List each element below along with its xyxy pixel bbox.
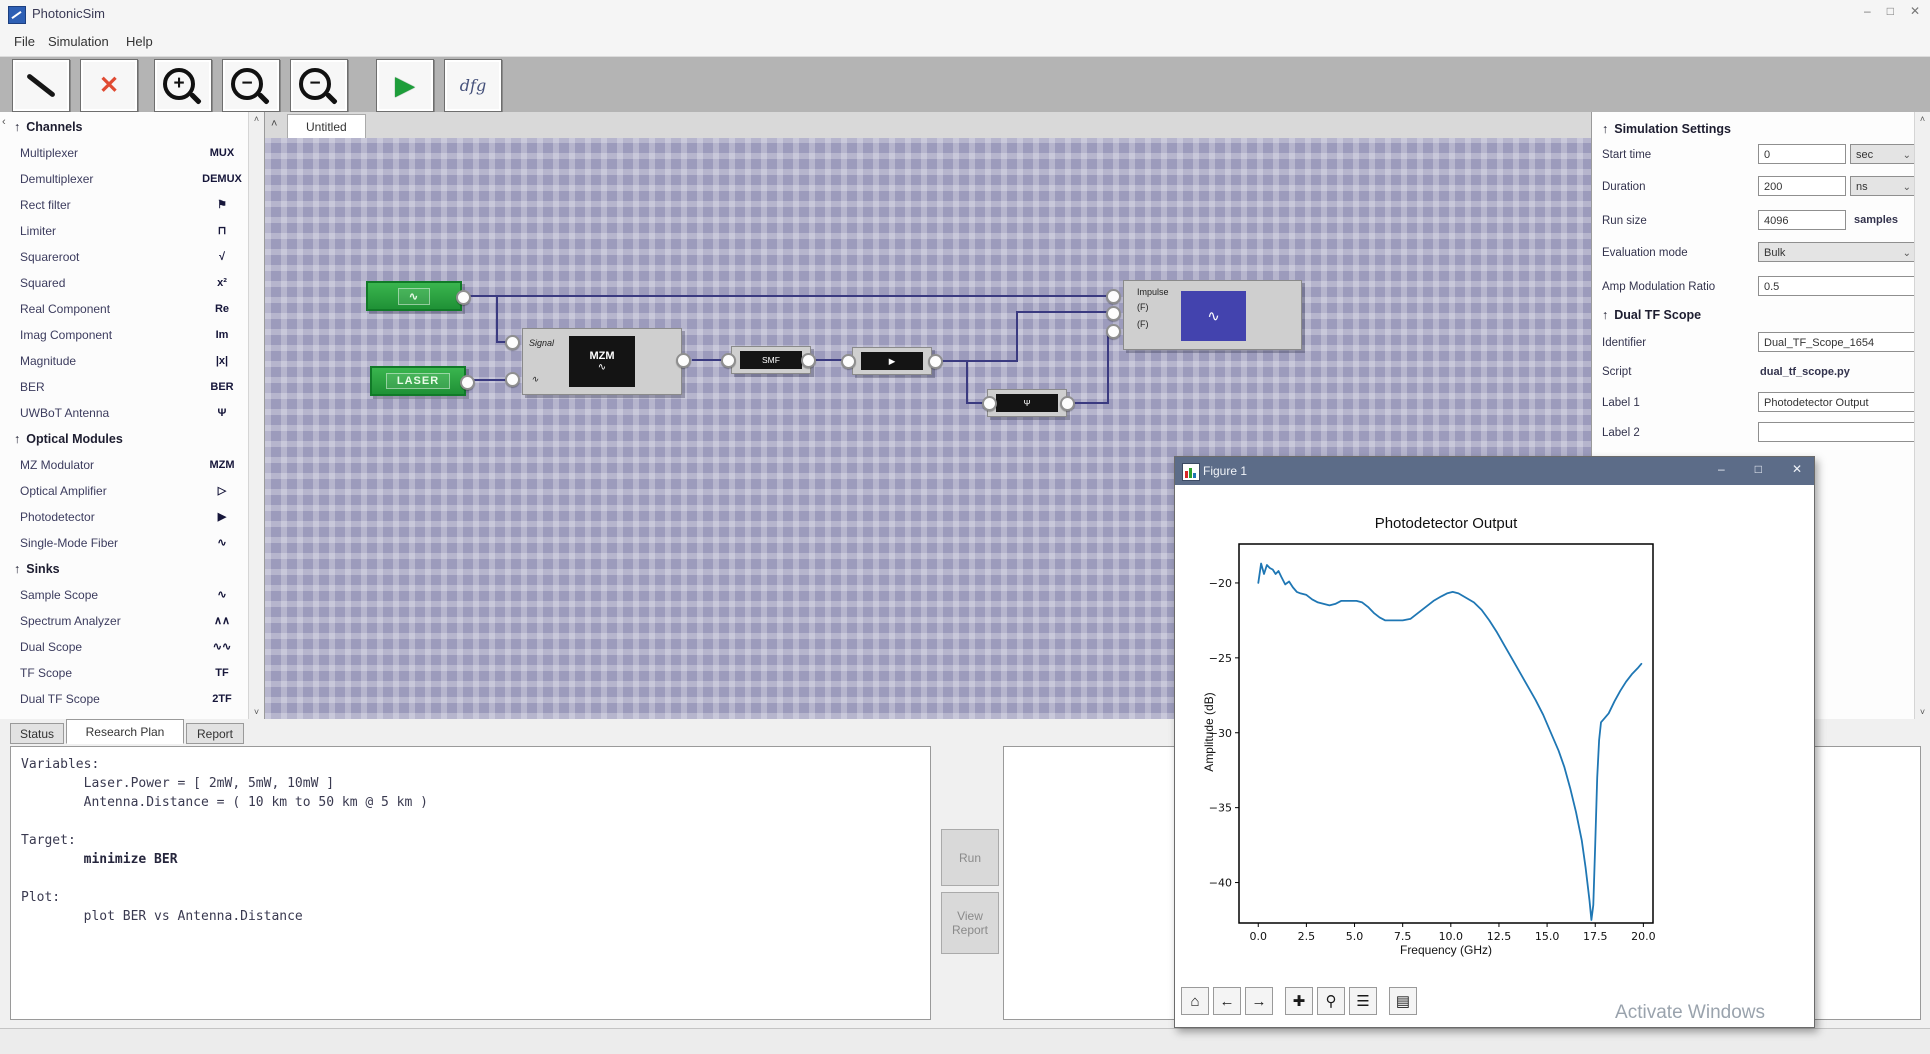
scope-port2-label: (F) — [1137, 302, 1149, 312]
y-axis-label: Amplitude (dB) — [1202, 662, 1216, 802]
palette-item-ber[interactable]: BERBER — [14, 374, 246, 400]
collapse-arrow-icon: ↑ — [14, 562, 20, 576]
component-palette: ‹ ↑ChannelsMultiplexerMUXDemultiplexerDE… — [0, 112, 265, 719]
scope-f1-port[interactable] — [1106, 306, 1121, 321]
canvas-tab-bar: ˄ Untitled — [265, 112, 1591, 139]
svg-text:15.0: 15.0 — [1535, 930, 1560, 943]
identifier-input[interactable]: Dual_TF_Scope_1654 — [1758, 332, 1916, 352]
palette-item-imag-component-icon: Im — [198, 322, 246, 348]
scope-port1-label: Impulse — [1137, 287, 1169, 297]
mzm-laser-port-label: ∿ — [531, 374, 539, 385]
wire-tool-button[interactable] — [12, 59, 70, 112]
palette-item-label: Squared — [14, 270, 65, 296]
view-report-button[interactable]: View Report — [941, 892, 999, 954]
palette-item-label: Single-Mode Fiber — [14, 530, 118, 556]
figure-window[interactable]: Figure 1 – □ ✕ 0.02.55.07.510.012.515.01… — [1174, 456, 1815, 1028]
photodetector-output-port[interactable] — [928, 354, 943, 369]
palette-item-label: Sample Scope — [14, 582, 98, 608]
palette-item-squared[interactable]: Squaredx² — [14, 270, 246, 296]
palette-item-limiter-icon: ⊓ — [198, 218, 246, 244]
tab-status[interactable]: Status — [10, 723, 64, 744]
palette-item-real-component[interactable]: Real ComponentRe — [14, 296, 246, 322]
mz-modulator-block[interactable]: Signal ∿ MZM ∿ — [522, 328, 682, 395]
zoom-fit-icon: − — [299, 68, 331, 100]
tab-research-plan[interactable]: Research Plan — [66, 719, 184, 744]
run-simulation-button[interactable]: ▶ — [376, 59, 434, 112]
figure-minimize-button[interactable]: – — [1718, 462, 1725, 476]
delete-button[interactable]: ✕ — [80, 59, 138, 112]
start-time-unit-select[interactable]: sec⌄ — [1850, 144, 1916, 164]
palette-item-label: Demultiplexer — [14, 166, 93, 192]
scroll-down-icon[interactable]: ˅ — [1915, 707, 1930, 717]
antenna-output-port[interactable] — [1060, 396, 1075, 411]
mzm-signal-port[interactable] — [505, 335, 520, 350]
fiber-output-port[interactable] — [801, 353, 816, 368]
menu-bar: File Simulation Help — [0, 28, 1930, 56]
svg-text:2.5: 2.5 — [1298, 930, 1316, 943]
collapse-arrow-icon: ↑ — [14, 432, 20, 446]
simulation-settings-header: ↑Simulation Settings — [1602, 122, 1731, 136]
script-label: Script — [1602, 366, 1631, 378]
mzm-core: MZM ∿ — [569, 336, 635, 387]
zoom-in-icon: + — [163, 68, 195, 100]
scope-f2-port[interactable] — [1106, 324, 1121, 339]
palette-item-ber-icon: BER — [198, 374, 246, 400]
scope-core: ∿ — [1181, 291, 1246, 341]
status-bar — [0, 1028, 1930, 1054]
chevron-down-icon: ⌄ — [1903, 147, 1911, 165]
run-size-label: Run size — [1602, 215, 1647, 227]
back-icon[interactable]: ← — [1213, 987, 1241, 1015]
palette-collapse-icon[interactable]: ‹ — [2, 116, 6, 128]
svg-text:12.5: 12.5 — [1487, 930, 1512, 943]
palette-item-label: TF Scope — [14, 660, 72, 686]
palette-item-spectrum-analyzer-icon: ∧∧ — [198, 608, 246, 634]
svg-text:7.5: 7.5 — [1394, 930, 1412, 943]
dual-tf-scope-block[interactable]: Impulse (F) (F) ∿ — [1123, 280, 1302, 350]
evaluation-mode-select[interactable]: Bulk⌄ — [1758, 242, 1916, 262]
palette-item-mz-modulator[interactable]: MZ ModulatorMZM — [14, 452, 246, 478]
menu-file[interactable]: File — [14, 34, 35, 49]
figure-toolbar: ⌂ ← → ✚ ⚲ ☰ ▤ — [1181, 987, 1417, 1015]
antenna-block[interactable]: Ψ — [987, 389, 1067, 417]
palette-item-magnitude[interactable]: Magnitude|x| — [14, 348, 246, 374]
palette-item-rect-filter[interactable]: Rect filter⚑ — [14, 192, 246, 218]
palette-item-label: Real Component — [14, 296, 110, 322]
subplot-config-icon[interactable]: ☰ — [1349, 987, 1377, 1015]
amp-ratio-input[interactable]: 0.5 — [1758, 276, 1916, 296]
palette-item-squared-icon: x² — [198, 270, 246, 296]
zoom-out-button[interactable]: − — [222, 59, 280, 112]
start-time-label: Start time — [1602, 149, 1651, 161]
fiber-block[interactable]: SMF — [731, 346, 811, 374]
script-button[interactable]: dfg — [444, 59, 502, 112]
script-value: dual_tf_scope.py — [1760, 366, 1850, 378]
menu-simulation[interactable]: Simulation — [48, 34, 109, 49]
palette-item-mz-modulator-icon: MZM — [198, 452, 246, 478]
chevron-down-icon: ⌄ — [1903, 179, 1911, 197]
zoom-in-button[interactable]: + — [154, 59, 212, 112]
palette-item-demultiplexer-icon: DEMUX — [198, 166, 246, 192]
palette-item-label: Magnitude — [14, 348, 76, 374]
scope-impulse-port[interactable] — [1106, 289, 1121, 304]
palette-item-single-mode-fiber[interactable]: Single-Mode Fiber∿ — [14, 530, 246, 556]
evaluation-mode-label: Evaluation mode — [1602, 247, 1688, 259]
photodetector-input-port[interactable] — [841, 354, 856, 369]
palette-item-label: Imag Component — [14, 322, 112, 348]
palette-item-label: Optical Amplifier — [14, 478, 107, 504]
figure-title: Figure 1 — [1203, 464, 1247, 478]
zoom-rect-icon[interactable]: ⚲ — [1317, 987, 1345, 1015]
minimize-button[interactable]: – — [1864, 4, 1871, 18]
palette-item-magnitude-icon: |x| — [198, 348, 246, 374]
mzm-output-port[interactable] — [676, 353, 691, 368]
laser-source-block[interactable]: LASER — [370, 366, 466, 396]
palette-item-multiplexer-icon: MUX — [198, 140, 246, 166]
label1-input[interactable]: Photodetector Output — [1758, 392, 1916, 412]
menu-help[interactable]: Help — [126, 34, 153, 49]
palette-item-sample-scope[interactable]: Sample Scope∿ — [14, 582, 246, 608]
duration-label: Duration — [1602, 181, 1645, 193]
figure-close-button[interactable]: ✕ — [1792, 462, 1802, 476]
label2-label: Label 2 — [1602, 427, 1640, 439]
label1-label: Label 1 — [1602, 397, 1640, 409]
palette-item-label: Rect filter — [14, 192, 71, 218]
zoom-fit-button[interactable]: − — [290, 59, 348, 112]
palette-item-label: Limiter — [14, 218, 56, 244]
palette-item-label: BER — [14, 374, 45, 400]
palette-item-label: Spectrum Analyzer — [14, 608, 121, 634]
figure-maximize-button[interactable]: □ — [1755, 462, 1762, 476]
impulse-source-output-port[interactable] — [456, 290, 471, 305]
research-plan-panel[interactable]: Variables: Laser.Power = [ 2mW, 5mW, 10m… — [10, 746, 931, 1020]
impulse-source-block[interactable]: ∿ — [366, 281, 462, 311]
figure-title-bar[interactable]: Figure 1 – □ ✕ — [1175, 457, 1814, 485]
palette-item-spectrum-analyzer[interactable]: Spectrum Analyzer∧∧ — [14, 608, 246, 634]
photodetector-label: ▶ — [861, 352, 923, 370]
dual-tf-scope-header: ↑Dual TF Scope — [1602, 308, 1701, 322]
script-icon: dfg — [460, 76, 486, 95]
svg-text:10.0: 10.0 — [1439, 930, 1464, 943]
palette-item-single-mode-fiber-icon: ∿ — [198, 530, 246, 556]
delete-icon: ✕ — [99, 71, 119, 100]
palette-item-label: UWBoT Antenna — [14, 400, 109, 426]
svg-text:5.0: 5.0 — [1346, 930, 1364, 943]
palette-scrollbar[interactable]: ˄ ˅ — [248, 112, 264, 719]
maximize-button[interactable]: □ — [1887, 4, 1894, 18]
run-button[interactable]: Run — [941, 829, 999, 886]
antenna-label: Ψ — [996, 394, 1058, 412]
palette-item-dual-scope-icon: ∿∿ — [198, 634, 246, 660]
palette-item-optical-amplifier[interactable]: Optical Amplifier▷ — [14, 478, 246, 504]
palette-section-channels[interactable]: ↑Channels — [14, 114, 246, 140]
matplotlib-icon — [1182, 463, 1200, 481]
palette-item-label: Squareroot — [14, 244, 79, 270]
chart-title: Photodetector Output — [1239, 515, 1653, 532]
palette-item-label: Dual Scope — [14, 634, 82, 660]
fiber-label: SMF — [740, 351, 802, 369]
mzm-signal-port-label: Signal — [529, 338, 554, 348]
canvas-tab-untitled[interactable]: Untitled — [287, 114, 366, 139]
label2-input[interactable] — [1758, 422, 1916, 442]
impulse-source-label: ∿ — [398, 288, 430, 305]
research-plan-text: Variables: Laser.Power = [ 2mW, 5mW, 10m… — [11, 747, 930, 934]
zoom-out-icon: − — [231, 68, 263, 100]
canvas-collapse-icon[interactable]: ˄ — [271, 118, 277, 130]
forward-icon[interactable]: → — [1245, 987, 1273, 1015]
save-icon[interactable]: ▤ — [1389, 987, 1417, 1015]
home-icon[interactable]: ⌂ — [1181, 987, 1209, 1015]
palette-item-dual-tf-scope-icon: 2TF — [198, 686, 246, 712]
palette-item-tf-scope-icon: TF — [198, 660, 246, 686]
palette-item-uwbot-antenna-icon: Ψ — [198, 400, 246, 426]
run-size-unit-label: samples — [1854, 214, 1898, 226]
svg-text:−35: −35 — [1209, 802, 1232, 815]
app-icon — [8, 6, 26, 24]
svg-text:20.0: 20.0 — [1631, 930, 1656, 943]
svg-text:17.5: 17.5 — [1583, 930, 1608, 943]
collapse-arrow-icon[interactable]: ↑ — [1602, 122, 1608, 136]
palette-item-optical-amplifier-icon: ▷ — [198, 478, 246, 504]
palette-item-imag-component[interactable]: Imag ComponentIm — [14, 322, 246, 348]
palette-item-photodetector-icon: ▶ — [198, 504, 246, 530]
palette-section-optical-modules[interactable]: ↑Optical Modules — [14, 426, 246, 452]
palette-item-dual-tf-scope[interactable]: Dual TF Scope2TF — [14, 686, 246, 712]
mzm-laser-port[interactable] — [505, 372, 520, 387]
run-size-input[interactable]: 4096 — [1758, 210, 1846, 230]
palette-list: ↑ChannelsMultiplexerMUXDemultiplexerDEMU… — [14, 114, 246, 712]
palette-item-label: Photodetector — [14, 504, 95, 530]
laser-output-port[interactable] — [460, 375, 475, 390]
duration-unit-select[interactable]: ns⌄ — [1850, 176, 1916, 196]
duration-input[interactable]: 200 — [1758, 176, 1846, 196]
palette-item-real-component-icon: Re — [198, 296, 246, 322]
antenna-input-port[interactable] — [982, 396, 997, 411]
scroll-down-icon[interactable]: ˅ — [249, 707, 264, 717]
palette-item-squareroot[interactable]: Squareroot√ — [14, 244, 246, 270]
palette-item-uwbot-antenna[interactable]: UWBoT AntennaΨ — [14, 400, 246, 426]
scope-port3-label: (F) — [1137, 319, 1149, 329]
settings-scrollbar[interactable]: ˄ ˅ — [1914, 112, 1930, 719]
play-icon: ▶ — [395, 70, 415, 101]
palette-item-squareroot-icon: √ — [198, 244, 246, 270]
laser-source-label: LASER — [386, 373, 450, 389]
activate-windows-watermark: Activate Windows — [1615, 1002, 1765, 1024]
identifier-label: Identifier — [1602, 337, 1646, 349]
scroll-up-icon[interactable]: ˄ — [249, 114, 264, 124]
svg-text:0.0: 0.0 — [1250, 930, 1268, 943]
palette-item-tf-scope[interactable]: TF ScopeTF — [14, 660, 246, 686]
palette-item-rect-filter-icon: ⚑ — [198, 192, 246, 218]
scroll-up-icon[interactable]: ˄ — [1915, 114, 1930, 124]
palette-item-limiter[interactable]: Limiter⊓ — [14, 218, 246, 244]
palette-item-label: Dual TF Scope — [14, 686, 100, 712]
app-title: PhotonicSim — [32, 6, 105, 21]
photodetector-block[interactable]: ▶ — [852, 347, 932, 375]
amp-ratio-label: Amp Modulation Ratio — [1602, 281, 1715, 293]
close-button[interactable]: ✕ — [1910, 4, 1920, 18]
palette-section-sinks[interactable]: ↑Sinks — [14, 556, 246, 582]
start-time-input[interactable]: 0 — [1758, 144, 1846, 164]
app-window: PhotonicSim – □ ✕ File Simulation Help ✕… — [0, 0, 1930, 1054]
palette-item-multiplexer[interactable]: MultiplexerMUX — [14, 140, 246, 166]
palette-item-label: MZ Modulator — [14, 452, 94, 478]
chevron-down-icon: ⌄ — [1903, 245, 1911, 263]
palette-item-demultiplexer[interactable]: DemultiplexerDEMUX — [14, 166, 246, 192]
svg-text:−40: −40 — [1209, 877, 1232, 890]
palette-item-photodetector[interactable]: Photodetector▶ — [14, 504, 246, 530]
palette-item-label: Multiplexer — [14, 140, 78, 166]
wire-icon — [26, 73, 56, 98]
palette-item-dual-scope[interactable]: Dual Scope∿∿ — [14, 634, 246, 660]
toolbar: ✕ + − − ▶ dfg — [0, 56, 1930, 114]
svg-text:−20: −20 — [1209, 577, 1232, 590]
x-axis-label: Frequency (GHz) — [1239, 943, 1653, 957]
collapse-arrow-icon[interactable]: ↑ — [1602, 308, 1608, 322]
palette-item-sample-scope-icon: ∿ — [198, 582, 246, 608]
title-bar: PhotonicSim – □ ✕ — [0, 0, 1930, 28]
pan-icon[interactable]: ✚ — [1285, 987, 1313, 1015]
fiber-input-port[interactable] — [721, 353, 736, 368]
collapse-arrow-icon: ↑ — [14, 120, 20, 134]
tab-report[interactable]: Report — [186, 723, 244, 744]
